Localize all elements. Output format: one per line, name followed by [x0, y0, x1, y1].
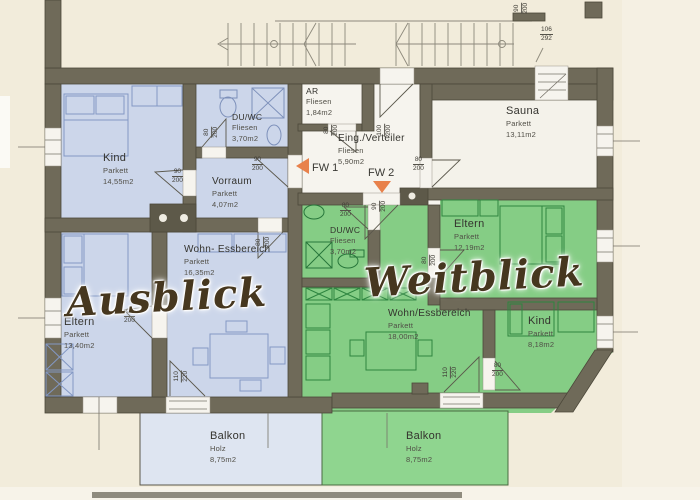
- balcony-door-right: [440, 393, 483, 408]
- dim-label-80-200: 80200: [413, 156, 424, 173]
- door-eltern-left: [152, 305, 167, 338]
- dim-label-90-200: 90200: [252, 156, 263, 173]
- door-vorraum-wohn: [258, 218, 282, 232]
- dim-label-80-200: 80200: [421, 255, 438, 266]
- dim-label-90-200: 90200: [513, 3, 530, 14]
- fw2-arrow-icon: [373, 181, 391, 193]
- floor-plan-drawing: [0, 0, 700, 500]
- window-bottom-left: [83, 397, 117, 413]
- window-sauna: [597, 126, 613, 156]
- window-left-2: [45, 298, 61, 338]
- window-right-2: [597, 316, 613, 348]
- window-left-1: [45, 128, 61, 166]
- balcony-door-left: [166, 397, 210, 413]
- dim-label-90-200: 90200: [172, 168, 183, 185]
- fw1-label: FW 1: [312, 162, 338, 174]
- dim-label-90-200: 90200: [371, 201, 388, 212]
- door-duwc-left: [202, 147, 226, 158]
- dim-label-80-200: 80200: [492, 362, 503, 379]
- door-main-entry: [380, 68, 414, 84]
- dim-label-80-200: 80200: [323, 125, 340, 136]
- dim-label-80-200: 80200: [255, 237, 272, 248]
- dim-label-80-200: 80200: [203, 127, 220, 138]
- dim-label-106-292: 106292: [540, 26, 553, 43]
- dim-label-90-200: 90200: [124, 308, 135, 325]
- dim-label-100-200: 100200: [376, 124, 393, 137]
- dim-label-110-220: 110220: [173, 370, 190, 382]
- fw2-label: FW 2: [368, 167, 394, 179]
- floorplan-page: KindParkett14,55m2DU/WCFliesen3,70m2Vorr…: [0, 0, 700, 500]
- door-kind-left: [183, 170, 196, 196]
- fw1-arrow-icon: [296, 158, 309, 174]
- staircase: [218, 21, 543, 66]
- window-right-1: [597, 230, 613, 262]
- dim-label-80-200: 80200: [340, 202, 351, 219]
- stair-top-door: [535, 66, 568, 100]
- dim-label-110-220: 110220: [442, 366, 459, 378]
